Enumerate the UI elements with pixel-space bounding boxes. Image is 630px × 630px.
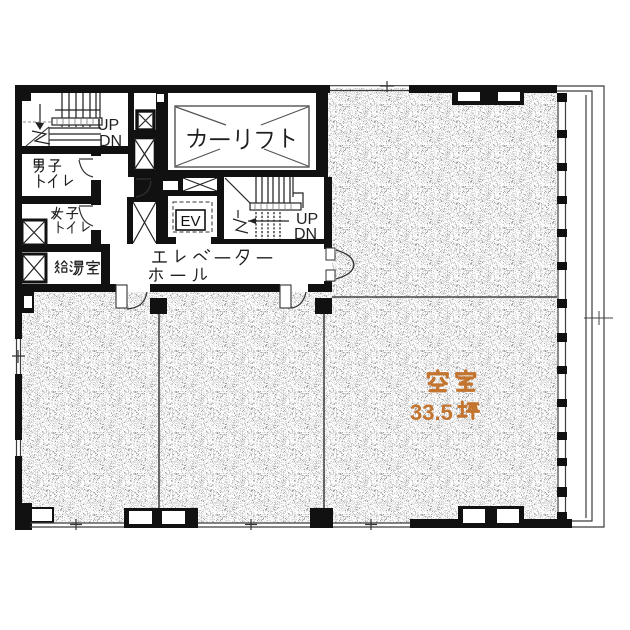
svg-text:DN: DN	[294, 226, 317, 243]
svg-text:UP: UP	[97, 117, 119, 134]
svg-text:33.5: 33.5	[410, 400, 453, 425]
svg-text:DN: DN	[99, 133, 122, 150]
svg-text:EV: EV	[180, 213, 200, 230]
